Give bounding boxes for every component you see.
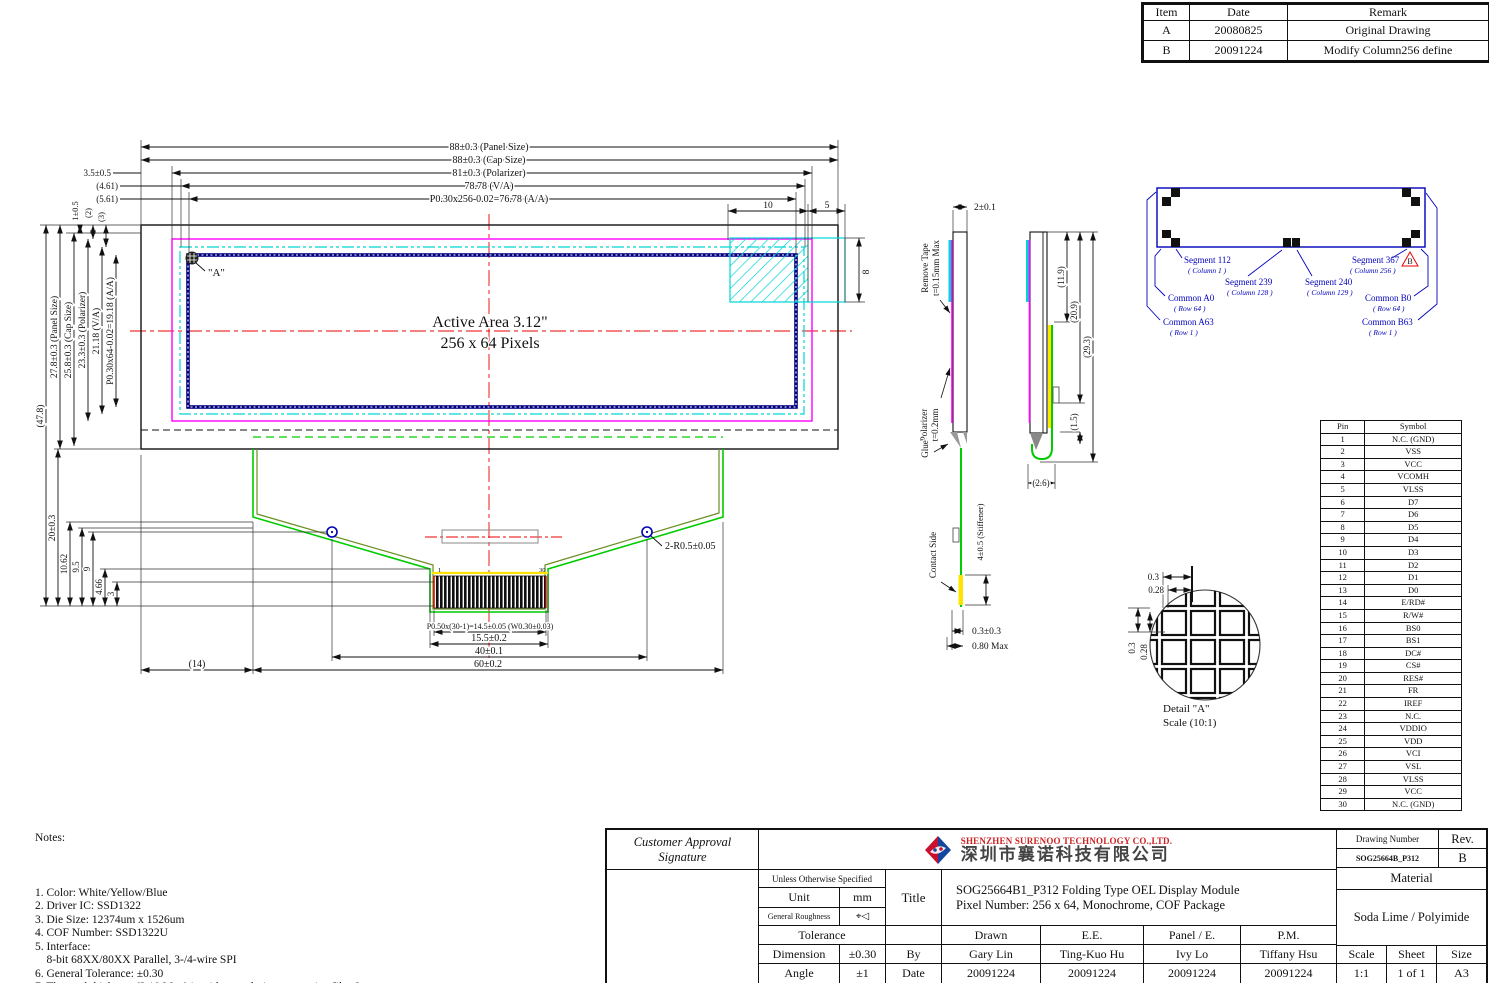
- glass-side-folded: [1030, 232, 1047, 433]
- note-line: 3. Die Size: 12374um x 1526um: [35, 914, 595, 928]
- dim-11-9: (11.9): [1056, 266, 1066, 287]
- pin-row: 25VDD: [1321, 735, 1462, 748]
- corner-a-label: "A": [208, 267, 225, 279]
- detail-dim-028v: 0.28: [1139, 644, 1149, 660]
- dim-080: 0.80 Max: [972, 642, 1009, 652]
- pin-row: 11D2: [1321, 559, 1462, 572]
- dim-20-9: (20.9): [1069, 301, 1079, 323]
- revision-col-item: Item: [1144, 5, 1190, 21]
- date-panel: 20091224: [1144, 964, 1241, 983]
- pin-cell: 28: [1321, 773, 1365, 786]
- revision-row: B20091224Modify Column256 define: [1144, 41, 1489, 61]
- dim-2-6: (2.6): [1032, 478, 1049, 488]
- pin-row: 17BS1: [1321, 635, 1462, 648]
- pin-row: 30N.C. (GND): [1321, 798, 1462, 811]
- name-pm: Tiffany Hsu: [1241, 945, 1337, 964]
- unless-otherwise-label: Unless Otherwise Specified: [759, 870, 886, 888]
- pin-col-pin: Pin: [1321, 421, 1365, 434]
- rev-value: B: [1439, 849, 1486, 868]
- pin-cell: 25: [1321, 735, 1365, 748]
- company-name-en: SHENZHEN SURENOO TECHNOLOGY CO.,LTD.: [961, 836, 1172, 846]
- pin-cell: D7: [1365, 496, 1462, 509]
- pin-row: 12D1: [1321, 572, 1462, 585]
- pin-row: 2VSS: [1321, 446, 1462, 459]
- pin30-label: 30: [539, 567, 546, 574]
- pin-cell: 10: [1321, 546, 1365, 559]
- cof-tail: 1 30 2-R0.5±0.05: [253, 449, 723, 612]
- dim-14: (14): [189, 659, 206, 670]
- remove-tape-label2: t=0.15mm Max: [931, 239, 941, 296]
- pin-cell: BS0: [1365, 622, 1462, 635]
- dim-10-62: 10.62: [59, 554, 69, 574]
- pin-row: 3VCC: [1321, 458, 1462, 471]
- fiducial-marks: [1162, 188, 1420, 247]
- revision-col-remark: Remark: [1288, 5, 1489, 21]
- note-line: 1. Color: White/Yellow/Blue: [35, 887, 595, 901]
- ic-on-flex: [953, 528, 959, 542]
- dim-4-61: (4.61): [96, 181, 118, 191]
- pin-cell: VDD: [1365, 735, 1462, 748]
- pin-row: 28VLSS: [1321, 773, 1462, 786]
- side-view-folded: (11.9) (20.9) (29.3) (1.5) (2.6): [1026, 232, 1098, 489]
- dim-3: (3): [96, 212, 106, 222]
- revision-triangle: B: [1402, 252, 1418, 266]
- pin-cell: 16: [1321, 622, 1365, 635]
- seg367-label: Segment 367: [1352, 255, 1400, 265]
- comA63-label: Common A63: [1163, 317, 1214, 327]
- dim-aa-h: P0.30x64-0.02=19.18 (A/A): [105, 277, 116, 385]
- dim-9: 9: [82, 566, 92, 571]
- revision-header-row: Item Date Remark: [1144, 5, 1489, 21]
- name-panel: Ivy Lo: [1144, 945, 1241, 964]
- dim-pitch: P0.50x(30-1)=14.5±0.05 (W0.30±0.03): [427, 622, 554, 631]
- pin-cell: 18: [1321, 647, 1365, 660]
- dim-2-01: 2±0.1: [974, 203, 996, 213]
- pin-row: 7D6: [1321, 509, 1462, 522]
- rear-view: Segment 112 ( Column 1 ) Common A0 ( Row…: [1147, 188, 1437, 337]
- pin-cell: 17: [1321, 635, 1365, 648]
- pin-cell: 29: [1321, 786, 1365, 799]
- signature-area[interactable]: [607, 870, 759, 983]
- dim-panel-h: 27.8±0.3 (Panel Size): [49, 296, 60, 378]
- col-pm: P.M.: [1241, 926, 1337, 945]
- dim-5: 5: [825, 201, 830, 211]
- pin-row: 4VCOMH: [1321, 471, 1462, 484]
- notes-block: Notes: 1. Color: White/Yellow/Blue2. Dri…: [35, 805, 595, 983]
- pin-row: 5VLSS: [1321, 483, 1462, 496]
- glue-label: Glue: [920, 440, 930, 458]
- dim-20: 20±0.3: [48, 514, 58, 541]
- detail-a-label: Detail "A": [1163, 703, 1210, 715]
- seg239-label: Segment 239: [1225, 277, 1273, 287]
- title-label: Title: [886, 870, 942, 926]
- detail-a-scale: Scale (10:1): [1163, 717, 1217, 729]
- angle-label: Angle: [759, 964, 840, 983]
- dim-cap-h: 25.8±0.3 (Cap Size): [63, 302, 74, 378]
- polarizer-label2: t=0.2mm: [930, 409, 940, 442]
- pin-cell: 2: [1321, 446, 1365, 459]
- dim-15-5: 15.5±0.2: [471, 633, 507, 644]
- drawing-title: SOG25664B1_P312 Folding Type OEL Display…: [942, 870, 1337, 926]
- drawing-title-line2: Pixel Number: 256 x 64, Monochrome, COF …: [956, 898, 1225, 913]
- pin-row: 8D5: [1321, 521, 1462, 534]
- stiffener-outline: [442, 530, 538, 543]
- pin-cell: 23: [1321, 710, 1365, 723]
- dim-29-3: (29.3): [1082, 336, 1092, 358]
- pin-cell: CS#: [1365, 660, 1462, 673]
- pin-cell: D4: [1365, 534, 1462, 547]
- pin-cell: RES#: [1365, 672, 1462, 685]
- pin-cell: DC#: [1365, 647, 1462, 660]
- size-label: Size: [1437, 946, 1486, 964]
- side-view-unfolded: 2±0.1 Remove Tape t=0.15mm Max Polarizer…: [919, 203, 1009, 652]
- pin-cell: FR: [1365, 685, 1462, 698]
- revision-col-date: Date: [1190, 5, 1288, 21]
- seg112-sub: ( Column 1 ): [1188, 266, 1227, 275]
- revision-row: A20080825Original Drawing: [1144, 21, 1489, 41]
- seg240-sub: ( Column 129 ): [1307, 288, 1353, 297]
- dim-pol-w: 81±0.3 (Polarizer): [452, 168, 525, 179]
- pin1-label: 1: [438, 567, 441, 574]
- company-name-cn: 深圳市襄诺科技有限公司: [961, 846, 1172, 864]
- pin-row: 23N.C.: [1321, 710, 1462, 723]
- alignment-holes: 2-R0.5±0.05: [327, 527, 716, 552]
- pin-cell: BS1: [1365, 635, 1462, 648]
- revision-cell: 20080825: [1190, 21, 1288, 41]
- contact-side-label: Contact Side: [928, 532, 938, 578]
- pin-cell: N.C. (GND): [1365, 433, 1462, 446]
- comB0-sub: ( Row 64 ): [1373, 304, 1405, 313]
- dim-8: 8: [862, 269, 872, 274]
- dim-pol-h: 23.3±0.3 (Polarizer): [77, 292, 88, 369]
- dimension-label: Dimension: [759, 945, 840, 964]
- size-value: A3: [1437, 964, 1486, 983]
- pin-cell: 30: [1321, 798, 1365, 811]
- pin-assignment: Pin Symbol 1N.C. (GND)2VSS3VCC4VCOMH5VLS…: [1320, 420, 1462, 811]
- pin-cell: 11: [1321, 559, 1365, 572]
- drawing-title-line1: SOG25664B1_P312 Folding Type OEL Display…: [956, 883, 1240, 898]
- contact-side-strip: [959, 575, 964, 605]
- name-drawn: Gary Lin: [942, 945, 1041, 964]
- notes-title: Notes:: [35, 832, 595, 846]
- pin-row: 1N.C. (GND): [1321, 433, 1462, 446]
- left-dimensions: (47.8) 27.8±0.3 (Panel Size) 25.8±0.3 (C…: [35, 201, 434, 606]
- pin-cell: 1: [1321, 433, 1365, 446]
- seg112-label: Segment 112: [1184, 255, 1231, 265]
- customer-approval-cell: Customer Approval Signature: [607, 830, 759, 870]
- pin-cell: D6: [1365, 509, 1462, 522]
- pin-cell: D0: [1365, 584, 1462, 597]
- pin-cell: 24: [1321, 723, 1365, 736]
- pin-cell: 5: [1321, 483, 1365, 496]
- revision-table-body: A20080825Original DrawingB20091224Modify…: [1144, 21, 1489, 61]
- angle-value: ±1: [840, 964, 886, 983]
- pin-cell: 26: [1321, 748, 1365, 761]
- pin-cell: 22: [1321, 698, 1365, 711]
- pin-cell: VLSS: [1365, 483, 1462, 496]
- title-block: Customer Approval Signature SHENZHEN SUR…: [605, 828, 1488, 983]
- roughness-symbol: ⌖◁: [840, 908, 886, 926]
- glue-blob: [950, 432, 961, 448]
- revision-cell: Original Drawing: [1288, 21, 1489, 41]
- pin-row: 13D0: [1321, 584, 1462, 597]
- dim-total-h: (47.8): [35, 405, 46, 428]
- revision-triangle-letter: B: [1407, 257, 1412, 266]
- pin-cell: E/RD#: [1365, 597, 1462, 610]
- pin-cell: N.C.: [1365, 710, 1462, 723]
- name-ee: Ting-Kuo Hu: [1041, 945, 1144, 964]
- dim-1-5: (1.5): [1069, 413, 1079, 430]
- pin-cell: 6: [1321, 496, 1365, 509]
- detail-dim-03h: 0.3: [1148, 572, 1160, 582]
- comB63-label: Common B63: [1362, 317, 1413, 327]
- pin-cell: 13: [1321, 584, 1365, 597]
- note-line: 8-bit 68XX/80XX Parallel, 3-/4-wire SPI: [35, 954, 595, 968]
- pin-cell: VLSS: [1365, 773, 1462, 786]
- tolerance-label: Tolerance: [759, 926, 886, 945]
- detail-a-view: 0.3 0.28 0.3 0.28 Detail "A" Scale (10:1…: [1127, 566, 1262, 729]
- pin-cell: D3: [1365, 546, 1462, 559]
- pin-cell: VSS: [1365, 446, 1462, 459]
- pin-row: 9D4: [1321, 534, 1462, 547]
- engineering-drawing-sheet: "A" Active Area 3.12" 256 x 64 Pixels 1 …: [0, 0, 1489, 983]
- pin-row: 20RES#: [1321, 672, 1462, 685]
- polarizer-label1: Polarizer: [919, 409, 929, 441]
- sheet-label: Sheet: [1387, 946, 1437, 964]
- roughness-label: General Roughness: [759, 908, 840, 926]
- comA0-label: Common A0: [1168, 293, 1215, 303]
- dim-40: 40±0.1: [475, 646, 503, 657]
- pin-header-row: Pin Symbol: [1321, 421, 1462, 434]
- dim-4-66: 4.66: [94, 579, 104, 595]
- dim-cap-w: 88±0.3 (Cap Size): [453, 155, 526, 166]
- rev-label: Rev.: [1439, 830, 1486, 849]
- pin-cell: VCC: [1365, 458, 1462, 471]
- detail-dim-028h: 0.28: [1148, 585, 1164, 595]
- pin-cell: 3: [1321, 458, 1365, 471]
- note-line: 5. Interface:: [35, 941, 595, 955]
- pin-cell: 15: [1321, 609, 1365, 622]
- col-ee: E.E.: [1041, 926, 1144, 945]
- pin-row: 10D3: [1321, 546, 1462, 559]
- date-label: Date: [886, 964, 942, 983]
- pin-cell: 4: [1321, 471, 1365, 484]
- pin-table-body: 1N.C. (GND)2VSS3VCC4VCOMH5VLSS6D77D68D59…: [1321, 433, 1462, 811]
- pin-cell: 14: [1321, 597, 1365, 610]
- pin-cell: D2: [1365, 559, 1462, 572]
- pin-cell: VSL: [1365, 761, 1462, 774]
- pin-row: 22IREF: [1321, 698, 1462, 711]
- revision-table: Item Date Remark A20080825Original Drawi…: [1141, 2, 1489, 63]
- dim-va-h: 21.18 (V/A): [91, 308, 102, 354]
- remove-tape-label1: Remove Tape: [920, 243, 930, 292]
- notes-list: 1. Color: White/Yellow/Blue2. Driver IC:…: [35, 887, 595, 983]
- pin-cell: 19: [1321, 660, 1365, 673]
- col-drawn: Drawn: [942, 926, 1041, 945]
- scale-label: Scale: [1337, 946, 1387, 964]
- pin-row: 18DC#: [1321, 647, 1462, 660]
- dim-5-61: (5.61): [96, 194, 118, 204]
- pin-row: 15R/W#: [1321, 609, 1462, 622]
- comA63-sub: ( Row 1 ): [1170, 328, 1198, 337]
- note-line: 4. COF Number: SSD1322U: [35, 927, 595, 941]
- material-value: Soda Lime / Polyimide: [1337, 890, 1486, 946]
- date-drawn: 20091224: [942, 964, 1041, 983]
- pin-cell: R/W#: [1365, 609, 1462, 622]
- pin-cell: VCC: [1365, 786, 1462, 799]
- active-area-line1: Active Area 3.12": [432, 314, 547, 331]
- pin-cell: 8: [1321, 521, 1365, 534]
- dim-1: 1±0.5: [70, 201, 80, 221]
- drawing-number-value: SOG25664B_P312: [1337, 849, 1439, 868]
- customer-approval-line2: Signature: [658, 850, 706, 865]
- company-header: SHENZHEN SURENOO TECHNOLOGY CO.,LTD. 深圳市…: [759, 830, 1337, 870]
- revision-cell: 20091224: [1190, 41, 1288, 61]
- dim-2: (2): [83, 208, 93, 218]
- pin-row: 6D7: [1321, 496, 1462, 509]
- pin-cell: 27: [1321, 761, 1365, 774]
- dim-0303: 0.3±0.3: [972, 627, 1001, 637]
- pin-cell: D1: [1365, 572, 1462, 585]
- date-pm: 20091224: [1241, 964, 1337, 983]
- pin-cell: 9: [1321, 534, 1365, 547]
- pixel-grid: [1148, 588, 1262, 702]
- pin-row: 21FR: [1321, 685, 1462, 698]
- customer-approval-line1: Customer Approval: [634, 835, 732, 850]
- comB0-label: Common B0: [1365, 293, 1412, 303]
- pin-cell: 12: [1321, 572, 1365, 585]
- dim-3-5: 3.5±0.5: [84, 168, 112, 178]
- comA0-sub: ( Row 64 ): [1174, 304, 1206, 313]
- pin-cell: 21: [1321, 685, 1365, 698]
- pin-row: 19CS#: [1321, 660, 1462, 673]
- spacer-cell: [886, 926, 942, 945]
- revision-cell: B: [1144, 41, 1190, 61]
- dim-3b: 3: [106, 591, 116, 596]
- seg239-sub: ( Column 128 ): [1227, 288, 1273, 297]
- revision-cell: Modify Column256 define: [1288, 41, 1489, 61]
- pin-cell: IREF: [1365, 698, 1462, 711]
- note-line: 2. Driver IC: SSD1322: [35, 900, 595, 914]
- revision-cell: A: [1144, 21, 1190, 41]
- by-label: By: [886, 945, 942, 964]
- ic-folded: [1053, 387, 1059, 403]
- detail-dim-03v: 0.3: [1127, 642, 1137, 654]
- dim-va-w: 78.78 (V/A): [465, 181, 514, 192]
- stiffener-dim: 4±0.5 (Stiffener): [975, 503, 985, 560]
- surenoo-logo: [923, 835, 953, 865]
- unit-label: Unit: [759, 888, 840, 908]
- col-panel: Panel / E.: [1144, 926, 1241, 945]
- pin-row: 14E/RD#: [1321, 597, 1462, 610]
- pin-cell: 20: [1321, 672, 1365, 685]
- seg240-label: Segment 240: [1305, 277, 1353, 287]
- date-ee: 20091224: [1041, 964, 1144, 983]
- active-area-line2: 256 x 64 Pixels: [440, 335, 539, 352]
- pin-row: 26VCI: [1321, 748, 1462, 761]
- pin-cell: VDDIO: [1365, 723, 1462, 736]
- connector-fingers: [434, 576, 546, 608]
- dim-10: 10: [763, 201, 773, 211]
- sheet-value: 1 of 1: [1387, 964, 1437, 983]
- pin-row: 24VDDIO: [1321, 723, 1462, 736]
- comB63-sub: ( Row 1 ): [1369, 328, 1397, 337]
- note-line: 6. General Tolerance: ±0.30: [35, 968, 595, 982]
- dim-aa-w: P0.30x256-0.02=76.78 (A/A): [430, 194, 548, 205]
- unit-value: mm: [840, 888, 886, 908]
- seg367-sub: ( Column 256 ): [1350, 266, 1396, 275]
- pin-cell: N.C. (GND): [1365, 798, 1462, 811]
- dimension-value: ±0.30: [840, 945, 886, 964]
- pin-row: 16BS0: [1321, 622, 1462, 635]
- pin-col-symbol: Symbol: [1365, 421, 1462, 434]
- pin-row: 27VSL: [1321, 761, 1462, 774]
- pin-cell: 7: [1321, 509, 1365, 522]
- pin-row: 29VCC: [1321, 786, 1462, 799]
- drawing-number-label: Drawing Number: [1337, 830, 1439, 849]
- scale-value: 1:1: [1337, 964, 1387, 983]
- pin-cell: VCOMH: [1365, 471, 1462, 484]
- pin-cell: D5: [1365, 521, 1462, 534]
- pin-cell: VCI: [1365, 748, 1462, 761]
- dim-9-5: 9.5: [71, 561, 81, 573]
- material-label: Material: [1337, 868, 1486, 890]
- dim-60: 60±0.2: [474, 659, 502, 670]
- dim-panel-w: 88±0.3 (Panel Size): [449, 142, 528, 153]
- holes-dim: 2-R0.5±0.05: [665, 541, 716, 552]
- glass-side: [953, 232, 967, 432]
